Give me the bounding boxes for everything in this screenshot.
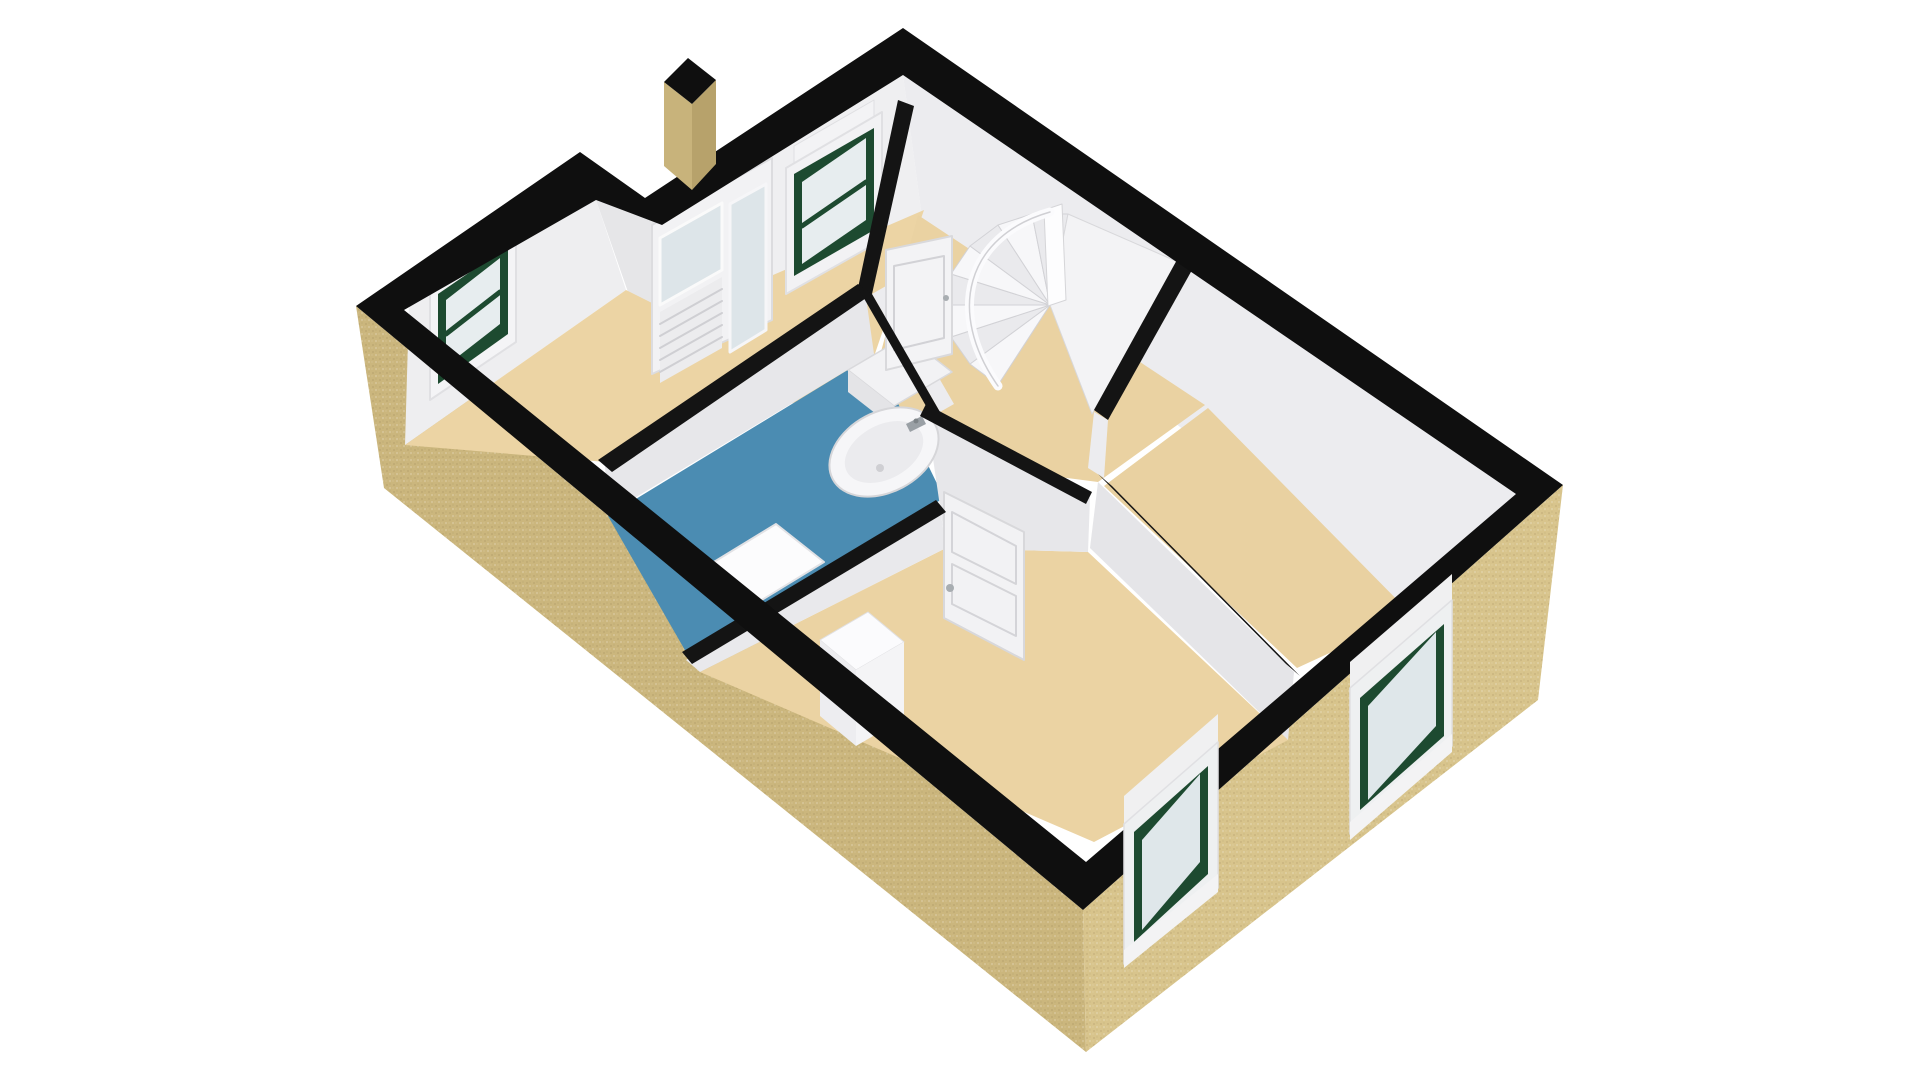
floorplan-svg [0,0,1920,1080]
sink-faucet-knob [914,419,919,424]
hall-door-handle [943,295,949,301]
floorplan-3d-view [0,0,1920,1080]
front-door-sidelight [730,184,766,352]
sink-drain [876,464,884,472]
stair-newel-post [1044,204,1066,306]
bottom-bedroom-door-handle [946,584,954,592]
